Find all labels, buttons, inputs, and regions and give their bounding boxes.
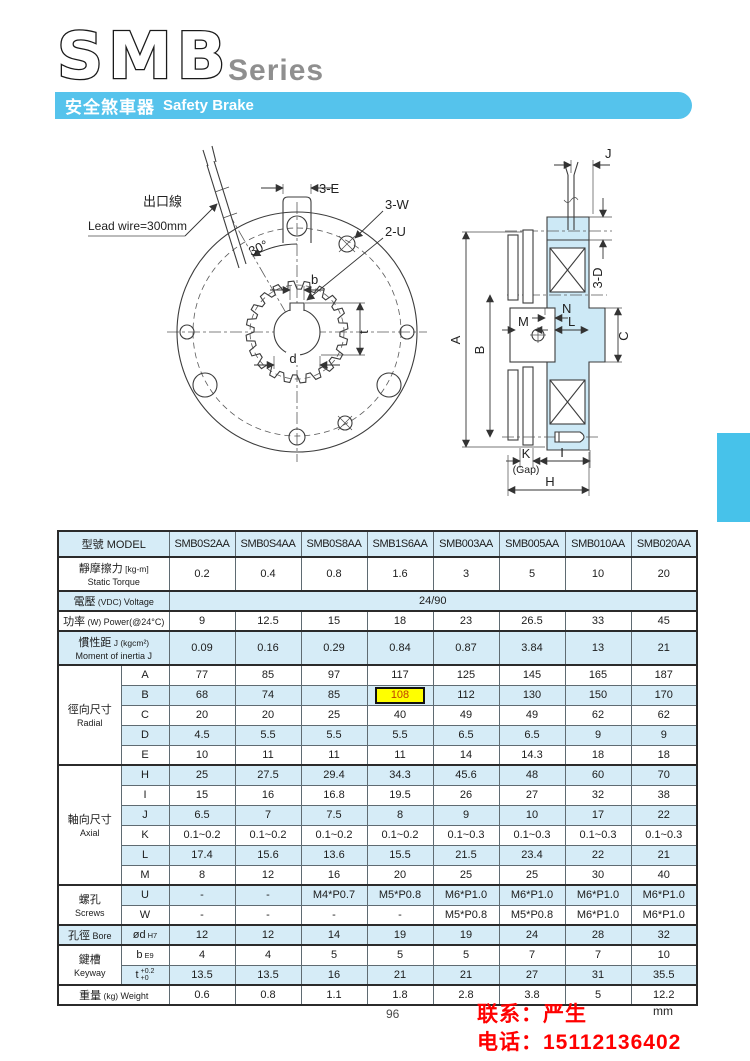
banner-title-en: Safety Brake bbox=[163, 97, 254, 114]
value-cell: 24 bbox=[499, 925, 565, 945]
spec-table-container: 型號 MODELSMB0S2AASMB0S4AASMB0S8AASMB1S6AA… bbox=[57, 530, 698, 1006]
dim-label-m: M bbox=[518, 314, 529, 329]
value-cell: - bbox=[235, 885, 301, 905]
dim-label-3d: 3-D bbox=[590, 268, 605, 289]
sub-label: U bbox=[121, 885, 169, 905]
value-cell: 25 bbox=[433, 865, 499, 885]
value-cell: 1.8 bbox=[367, 985, 433, 1005]
value-cell: 13.6 bbox=[301, 845, 367, 865]
sub-label: ødH7 bbox=[121, 925, 169, 945]
value-cell: 0.1~0.3 bbox=[631, 825, 697, 845]
dim-label-l: L bbox=[568, 314, 575, 329]
value-cell: 5.5 bbox=[367, 725, 433, 745]
value-cell: 3.84 bbox=[499, 631, 565, 665]
armature-plate-bottom bbox=[523, 367, 533, 445]
group-label: 孔徑 Bore bbox=[58, 925, 121, 945]
model-header-cell: SMB005AA bbox=[499, 531, 565, 557]
model-header-label: 型號 MODEL bbox=[58, 531, 169, 557]
value-cell: 18 bbox=[631, 745, 697, 765]
sub-label: E bbox=[121, 745, 169, 765]
coil-upper bbox=[550, 248, 585, 292]
row-label: 功率 (W) Power(@24°C) bbox=[58, 611, 169, 631]
dim-label-t: t bbox=[356, 330, 371, 334]
value-cell: 33 bbox=[565, 611, 631, 631]
value-cell: 125 bbox=[433, 665, 499, 685]
sub-label: bE9 bbox=[121, 945, 169, 965]
dim-label-3w: 3-W bbox=[385, 197, 410, 212]
value-cell: 16 bbox=[301, 865, 367, 885]
value-cell: 9 bbox=[169, 611, 235, 631]
contact-phone: 电话：15112136402 bbox=[477, 1029, 681, 1057]
value-cell: 14.3 bbox=[499, 745, 565, 765]
fixing-screw bbox=[555, 432, 584, 442]
value-cell: 62 bbox=[565, 705, 631, 725]
value-cell: 6.5 bbox=[499, 725, 565, 745]
value-cell: 117 bbox=[367, 665, 433, 685]
value-cell: 3 bbox=[433, 557, 499, 591]
value-cell: 9 bbox=[433, 805, 499, 825]
value-cell: 14 bbox=[301, 925, 367, 945]
value-cell: 9 bbox=[565, 725, 631, 745]
value-cell: 15.5 bbox=[367, 845, 433, 865]
value-cell: 31 bbox=[565, 965, 631, 985]
value-cell: 187 bbox=[631, 665, 697, 685]
dim-label-h: H bbox=[545, 474, 554, 489]
keyway-notch bbox=[290, 303, 304, 311]
value-cell: 12.5 bbox=[235, 611, 301, 631]
series-name-text: SMB bbox=[57, 20, 231, 94]
value-cell: 17.4 bbox=[169, 845, 235, 865]
value-cell: 26 bbox=[433, 785, 499, 805]
tab-hole-lower-left bbox=[193, 373, 217, 397]
sub-label: W bbox=[121, 905, 169, 925]
value-cell: 11 bbox=[301, 745, 367, 765]
value-cell: 21 bbox=[367, 965, 433, 985]
value-cell: 68 bbox=[169, 685, 235, 705]
value-cell: 40 bbox=[631, 865, 697, 885]
model-header-cell: SMB1S6AA bbox=[367, 531, 433, 557]
value-cell: 4 bbox=[169, 945, 235, 965]
value-cell: 23.4 bbox=[499, 845, 565, 865]
banner-title-zh: 安全煞車器 bbox=[65, 93, 155, 118]
value-cell: 25 bbox=[499, 865, 565, 885]
value-cell: M6*P1.0 bbox=[565, 885, 631, 905]
value-cell: 35.5 bbox=[631, 965, 697, 985]
value-cell: 26.5 bbox=[499, 611, 565, 631]
sub-label: B bbox=[121, 685, 169, 705]
value-cell: 25 bbox=[301, 705, 367, 725]
value-cell: 150 bbox=[565, 685, 631, 705]
value-cell: 0.09 bbox=[169, 631, 235, 665]
value-cell: 85 bbox=[301, 685, 367, 705]
sub-label: t+0.2+0 bbox=[121, 965, 169, 985]
armature-plate-top bbox=[523, 230, 533, 303]
value-cell: M5*P0.8 bbox=[367, 885, 433, 905]
dim-label-d: d bbox=[289, 351, 296, 366]
group-label: 鍵槽Keyway bbox=[58, 945, 121, 985]
dim-label-k: K bbox=[522, 446, 531, 461]
value-cell: 21 bbox=[631, 845, 697, 865]
contact-name: 联系：严生 bbox=[477, 1001, 681, 1029]
dim-label-j: J bbox=[605, 146, 612, 161]
datasheet-page: SMB Series 安全煞車器 Safety Brake 3-E bbox=[0, 0, 750, 1061]
group-label: 軸向尺寸Axial bbox=[58, 765, 121, 885]
value-cell: 7 bbox=[565, 945, 631, 965]
value-cell: 13.5 bbox=[235, 965, 301, 985]
lead-wire-2 bbox=[214, 161, 246, 264]
value-cell: 112 bbox=[433, 685, 499, 705]
value-cell: 17 bbox=[565, 805, 631, 825]
row-label: 重量 (kg) Weight bbox=[58, 985, 169, 1005]
value-cell: 13 bbox=[565, 631, 631, 665]
group-label: 螺孔Screws bbox=[58, 885, 121, 925]
value-cell: 4 bbox=[235, 945, 301, 965]
value-cell: 5.5 bbox=[235, 725, 301, 745]
value-cell: 25 bbox=[169, 765, 235, 785]
value-cell: 5 bbox=[433, 945, 499, 965]
row-label: 慣性距 J (kgcm²)Moment of inertia J bbox=[58, 631, 169, 665]
value-cell: 9 bbox=[631, 725, 697, 745]
value-cell: 30 bbox=[565, 865, 631, 885]
value-cell: 27 bbox=[499, 785, 565, 805]
sub-label: I bbox=[121, 785, 169, 805]
value-cell: M4*P0.7 bbox=[301, 885, 367, 905]
value-cell: 5 bbox=[499, 557, 565, 591]
value-cell: 77 bbox=[169, 665, 235, 685]
value-cell: 1.1 bbox=[301, 985, 367, 1005]
value-cell-span: 24/90 bbox=[169, 591, 697, 611]
value-cell: - bbox=[235, 905, 301, 925]
sub-label: A bbox=[121, 665, 169, 685]
value-cell: - bbox=[367, 905, 433, 925]
value-cell: 16 bbox=[301, 965, 367, 985]
flange-plate-bottom bbox=[508, 370, 518, 440]
value-cell: 0.2 bbox=[169, 557, 235, 591]
value-cell: 0.16 bbox=[235, 631, 301, 665]
tab-hole-lower-right bbox=[377, 373, 401, 397]
value-cell: 20 bbox=[367, 865, 433, 885]
value-cell: 5.5 bbox=[301, 725, 367, 745]
value-cell: 7 bbox=[235, 805, 301, 825]
value-cell: 21 bbox=[433, 965, 499, 985]
value-cell: 108 bbox=[367, 685, 433, 705]
dim-label-c: C bbox=[616, 331, 631, 340]
value-cell: 16.8 bbox=[301, 785, 367, 805]
product-banner: 安全煞車器 Safety Brake bbox=[55, 92, 692, 119]
value-cell: 29.4 bbox=[301, 765, 367, 785]
value-cell: 19.5 bbox=[367, 785, 433, 805]
lead-wire-label-en: Lead wire=300mm bbox=[88, 219, 187, 233]
value-cell: 0.6 bbox=[169, 985, 235, 1005]
value-cell: 38 bbox=[631, 785, 697, 805]
value-cell: - bbox=[169, 905, 235, 925]
value-cell: 1.6 bbox=[367, 557, 433, 591]
value-cell: 0.8 bbox=[235, 985, 301, 1005]
value-cell: 49 bbox=[433, 705, 499, 725]
value-cell: 32 bbox=[631, 925, 697, 945]
value-cell: 11 bbox=[235, 745, 301, 765]
sub-label: K bbox=[121, 825, 169, 845]
value-cell: 40 bbox=[367, 705, 433, 725]
value-cell: 8 bbox=[367, 805, 433, 825]
value-cell: 0.1~0.3 bbox=[433, 825, 499, 845]
value-cell: 0.1~0.2 bbox=[301, 825, 367, 845]
value-cell: 20 bbox=[631, 557, 697, 591]
value-cell: 22 bbox=[631, 805, 697, 825]
value-cell: M5*P0.8 bbox=[499, 905, 565, 925]
value-cell: 13.5 bbox=[169, 965, 235, 985]
value-cell: 32 bbox=[565, 785, 631, 805]
value-cell: 34.3 bbox=[367, 765, 433, 785]
value-cell: 28 bbox=[565, 925, 631, 945]
dim-label-a: A bbox=[450, 335, 463, 344]
value-cell: 19 bbox=[433, 925, 499, 945]
model-header-cell: SMB0S8AA bbox=[301, 531, 367, 557]
value-cell: 21 bbox=[631, 631, 697, 665]
value-cell: 16 bbox=[235, 785, 301, 805]
coil-lower bbox=[550, 380, 585, 424]
dim-label-gap: (Gap) bbox=[513, 464, 540, 476]
dim-label-3e: 3-E bbox=[319, 181, 340, 196]
value-cell: 85 bbox=[235, 665, 301, 685]
value-cell: 12 bbox=[235, 925, 301, 945]
value-cell: 0.1~0.2 bbox=[235, 825, 301, 845]
value-cell: 70 bbox=[631, 765, 697, 785]
value-cell: 0.1~0.3 bbox=[565, 825, 631, 845]
value-cell: 8 bbox=[169, 865, 235, 885]
value-cell: 20 bbox=[169, 705, 235, 725]
value-cell: 74 bbox=[235, 685, 301, 705]
value-cell: 15 bbox=[301, 611, 367, 631]
value-cell: 18 bbox=[565, 745, 631, 765]
dim-label-i: I bbox=[560, 445, 564, 460]
value-cell: 20 bbox=[235, 705, 301, 725]
value-cell: 18 bbox=[367, 611, 433, 631]
value-cell: 6.5 bbox=[433, 725, 499, 745]
value-cell: 15 bbox=[169, 785, 235, 805]
model-header-cell: SMB020AA bbox=[631, 531, 697, 557]
dim-label-2u: 2-U bbox=[385, 224, 406, 239]
contact-block: 联系：严生 电话：15112136402 bbox=[477, 1001, 681, 1057]
dim-label-b: b bbox=[311, 272, 318, 287]
value-cell: 7.5 bbox=[301, 805, 367, 825]
value-cell: 60 bbox=[565, 765, 631, 785]
value-cell: 6.5 bbox=[169, 805, 235, 825]
spec-table: 型號 MODELSMB0S2AASMB0S4AASMB0S8AASMB1S6AA… bbox=[57, 530, 698, 1006]
value-cell: 45 bbox=[631, 611, 697, 631]
value-cell: 27 bbox=[499, 965, 565, 985]
model-header-cell: SMB010AA bbox=[565, 531, 631, 557]
value-cell: 0.8 bbox=[301, 557, 367, 591]
value-cell: 10 bbox=[499, 805, 565, 825]
value-cell: 0.29 bbox=[301, 631, 367, 665]
value-cell: 10 bbox=[565, 557, 631, 591]
side-view-drawing: J 3-D A B N M L C bbox=[450, 140, 720, 530]
value-cell: 14 bbox=[433, 745, 499, 765]
front-view-drawing: 3-E 出口線 Lead wire=300mm 30° b t bbox=[55, 140, 435, 530]
value-cell: 0.1~0.2 bbox=[169, 825, 235, 845]
value-cell: 4.5 bbox=[169, 725, 235, 745]
page-number: 96 bbox=[386, 1007, 399, 1021]
value-cell: 12 bbox=[169, 925, 235, 945]
value-cell: 0.84 bbox=[367, 631, 433, 665]
value-cell: 48 bbox=[499, 765, 565, 785]
value-cell: 21.5 bbox=[433, 845, 499, 865]
value-cell: M6*P1.0 bbox=[631, 905, 697, 925]
page-edge-tab bbox=[717, 433, 750, 522]
lead-wire-label-zh: 出口線 bbox=[143, 194, 182, 209]
value-cell: 0.4 bbox=[235, 557, 301, 591]
row-label: 電壓 (VDC) Voltage bbox=[58, 591, 169, 611]
sub-label: M bbox=[121, 865, 169, 885]
sub-label: J bbox=[121, 805, 169, 825]
value-cell: 10 bbox=[631, 945, 697, 965]
value-cell: 5 bbox=[367, 945, 433, 965]
screw-hole-upper-right bbox=[339, 236, 355, 252]
value-cell: 19 bbox=[367, 925, 433, 945]
value-cell: 130 bbox=[499, 685, 565, 705]
model-header-cell: SMB0S2AA bbox=[169, 531, 235, 557]
value-cell: M5*P0.8 bbox=[433, 905, 499, 925]
screw-hole-lower-right bbox=[338, 416, 352, 430]
value-cell: M6*P1.0 bbox=[631, 885, 697, 905]
sub-label: H bbox=[121, 765, 169, 785]
value-cell: 11 bbox=[367, 745, 433, 765]
sub-label: D bbox=[121, 725, 169, 745]
value-cell: M6*P1.0 bbox=[433, 885, 499, 905]
value-cell: 10 bbox=[169, 745, 235, 765]
value-cell: 0.87 bbox=[433, 631, 499, 665]
value-cell: 22 bbox=[565, 845, 631, 865]
lead-wire bbox=[207, 165, 239, 268]
dim-label-b-side: B bbox=[472, 346, 487, 355]
value-cell: 15.6 bbox=[235, 845, 301, 865]
model-header-cell: SMB003AA bbox=[433, 531, 499, 557]
bore-circle bbox=[274, 309, 320, 355]
value-cell: 165 bbox=[565, 665, 631, 685]
value-cell: 0.1~0.2 bbox=[367, 825, 433, 845]
value-cell: 5 bbox=[301, 945, 367, 965]
value-cell: - bbox=[301, 905, 367, 925]
value-cell: 97 bbox=[301, 665, 367, 685]
value-cell: 145 bbox=[499, 665, 565, 685]
dim-label-angle: 30° bbox=[246, 237, 270, 259]
flange-plate-top bbox=[508, 235, 518, 300]
row-label: 靜摩擦力 [kg-m]Static Torque bbox=[58, 557, 169, 591]
value-cell: M6*P1.0 bbox=[565, 905, 631, 925]
value-cell: 0.1~0.3 bbox=[499, 825, 565, 845]
value-cell: 170 bbox=[631, 685, 697, 705]
sub-label: L bbox=[121, 845, 169, 865]
value-cell: 27.5 bbox=[235, 765, 301, 785]
value-cell: 49 bbox=[499, 705, 565, 725]
value-cell: 7 bbox=[499, 945, 565, 965]
value-cell: 23 bbox=[433, 611, 499, 631]
model-header-cell: SMB0S4AA bbox=[235, 531, 301, 557]
value-cell: - bbox=[169, 885, 235, 905]
sub-label: C bbox=[121, 705, 169, 725]
highlighted-value: 108 bbox=[375, 687, 425, 704]
value-cell: 12 bbox=[235, 865, 301, 885]
value-cell: M6*P1.0 bbox=[499, 885, 565, 905]
series-suffix-text: Series bbox=[228, 54, 324, 88]
value-cell: 45.6 bbox=[433, 765, 499, 785]
group-label: 徑向尺寸Radial bbox=[58, 665, 121, 765]
value-cell: 62 bbox=[631, 705, 697, 725]
